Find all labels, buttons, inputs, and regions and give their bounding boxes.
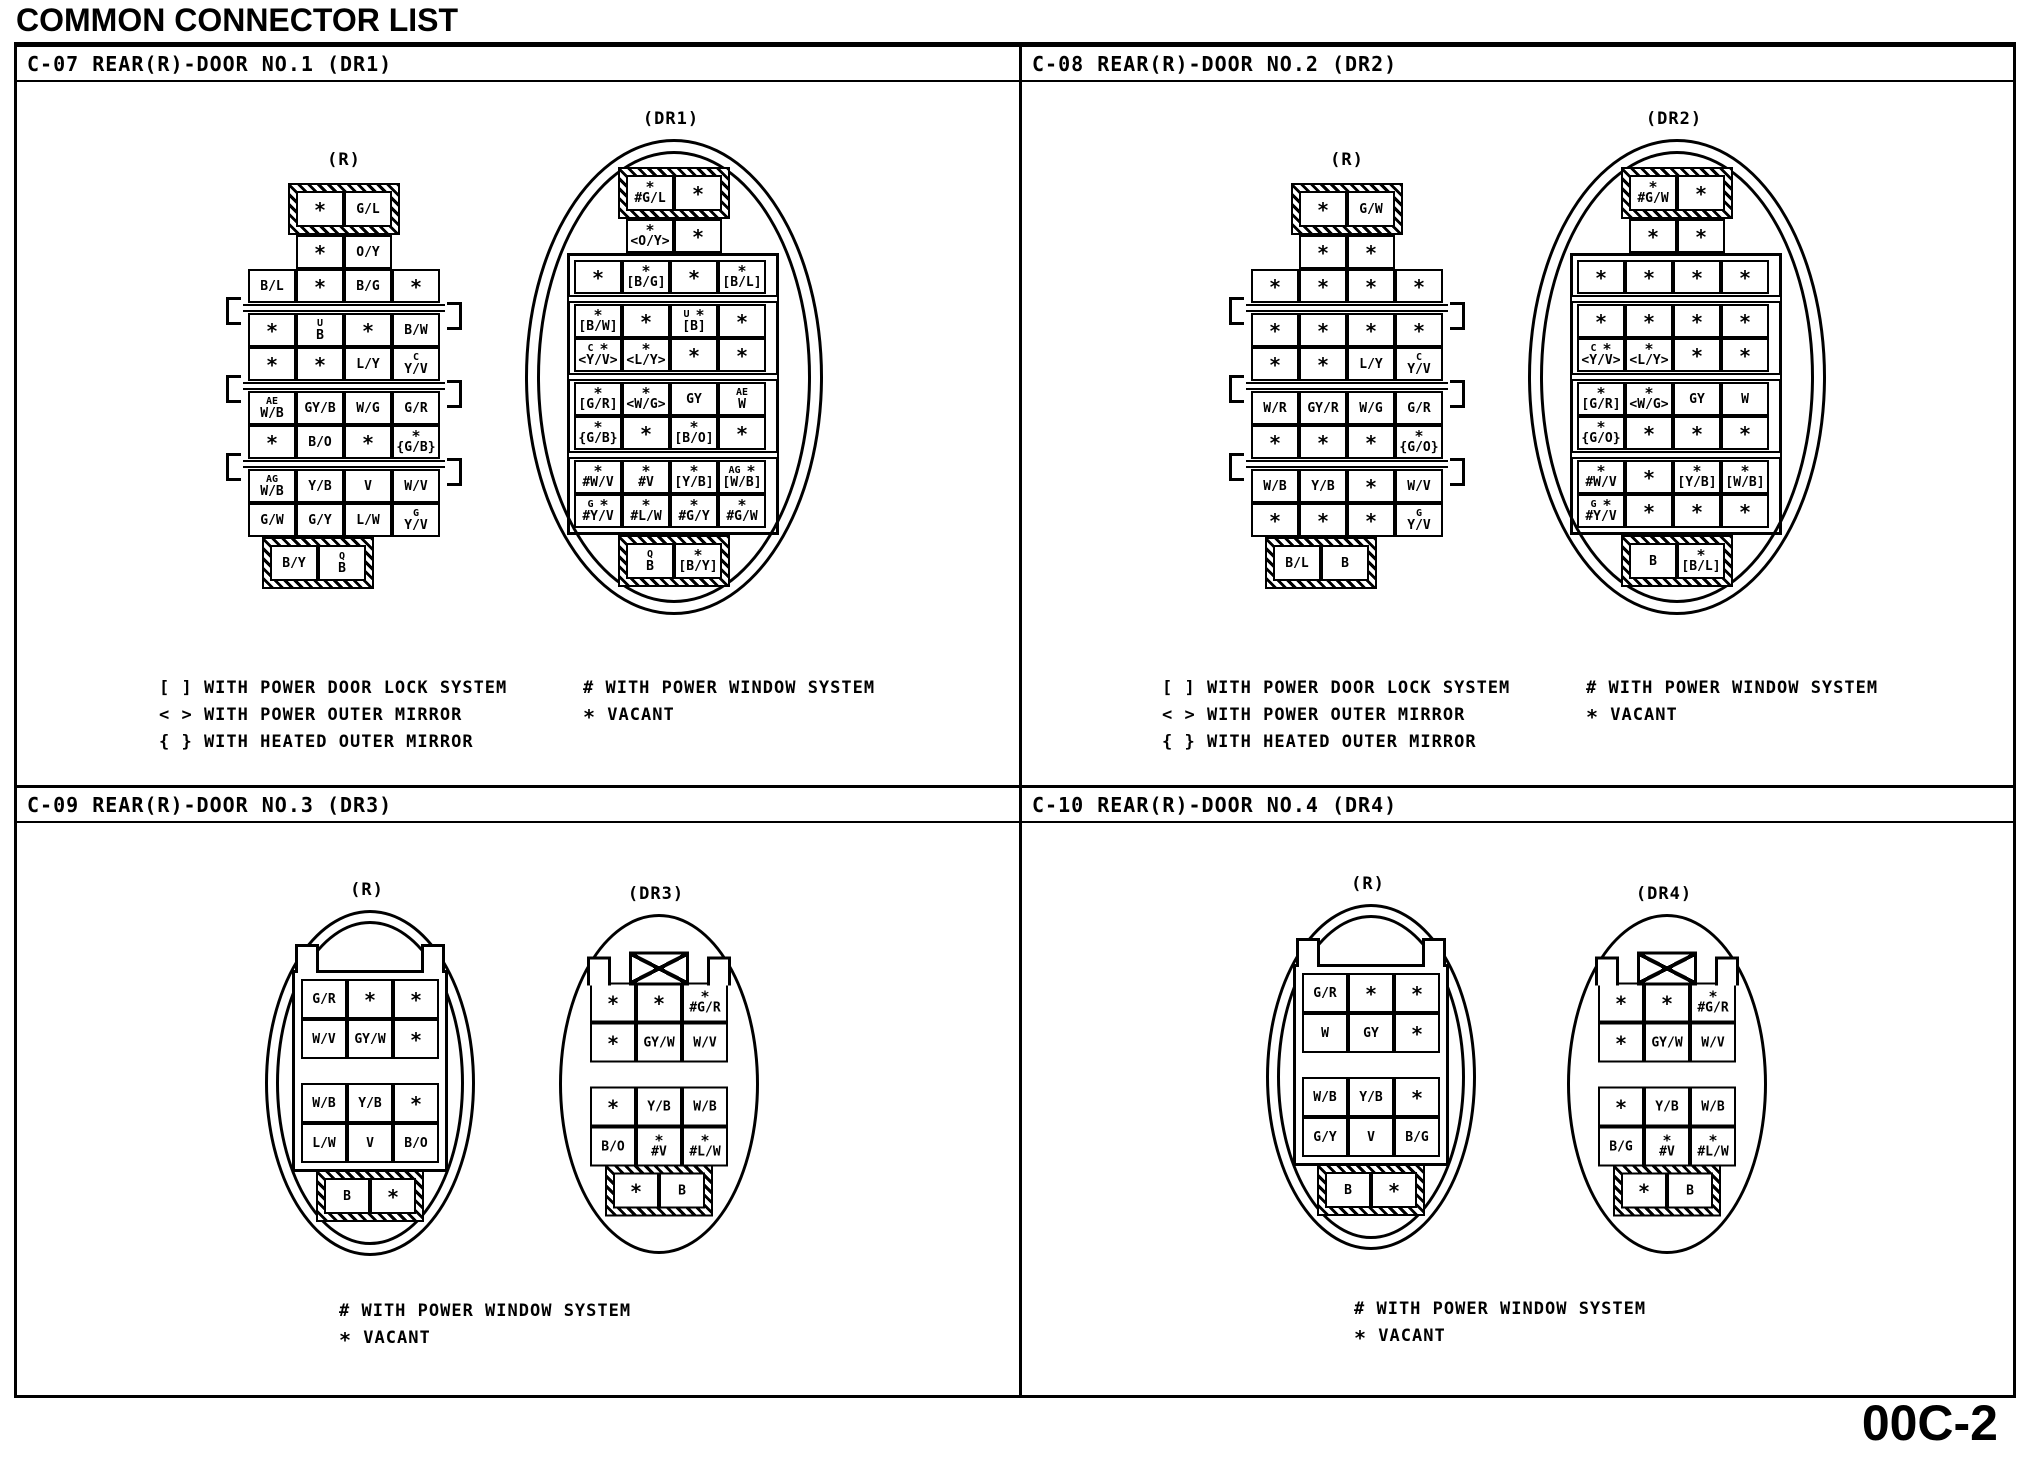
pin-cell: *	[1299, 503, 1347, 537]
pin-cell: *	[393, 1083, 439, 1123]
pin-row: *[B/W]*U *[B]*	[574, 304, 772, 338]
legend-line: * VACANT	[1354, 1323, 1646, 1350]
vacant-asterisk-icon: *	[1354, 1326, 1367, 1350]
pin-row: *B	[1621, 1173, 1713, 1209]
pin-cell: *	[344, 313, 392, 347]
vacant-asterisk-icon: *	[1661, 991, 1673, 1015]
pin-cell: *#G/Y	[670, 494, 718, 528]
pin-row: ***#G/R	[1598, 983, 1736, 1023]
pin-row: *Y/BW/B	[1598, 1087, 1736, 1127]
connector-keying	[587, 952, 731, 986]
pin-cell: *	[1348, 973, 1394, 1013]
pin-row: W/VGY/W*	[301, 1019, 439, 1059]
connector-label-dr4: (DR4)	[1567, 884, 1761, 904]
pin-row: **	[1299, 235, 1395, 269]
vacant-asterisk-icon: *	[1643, 500, 1655, 524]
vacant-asterisk-icon: *	[1739, 422, 1751, 446]
vacant-asterisk-icon: *	[640, 310, 652, 334]
pin-row: *{G/O}***	[1577, 416, 1775, 450]
pin-cell: *#L/W	[1690, 1127, 1736, 1167]
pin-cell: *#G/L	[626, 175, 674, 211]
pin-cell: *#L/W	[622, 494, 670, 528]
pin-cell: W/B	[1690, 1087, 1736, 1127]
pin-cell: *	[1677, 219, 1725, 253]
pin-cell: Y/B	[1299, 469, 1347, 503]
pin-row: G/WG/YL/WGY/V	[248, 503, 440, 537]
pin-cell: W/B	[301, 1083, 347, 1123]
pin-cell: *	[1395, 269, 1443, 303]
pin-cell: G/R	[1302, 973, 1348, 1013]
pin-row: ****	[1577, 304, 1775, 338]
vacant-asterisk-icon: *	[410, 988, 422, 1012]
connector-cap: B*[B/L]	[1621, 535, 1733, 587]
pin-cell: C *<Y/V>	[1577, 338, 1625, 372]
pin-cell: *[B/G]	[622, 260, 670, 294]
pin-cell: O/Y	[344, 235, 392, 269]
pin-cell: *	[1394, 1013, 1440, 1053]
pin-cell: *	[1347, 235, 1395, 269]
pin-cell: *	[1251, 269, 1299, 303]
connector-label-r: (R)	[265, 880, 469, 900]
pin-cell: Y/B	[296, 469, 344, 503]
key-tab	[1595, 957, 1619, 986]
pin-cell: *	[622, 416, 670, 450]
vacant-asterisk-icon: *	[339, 1328, 352, 1352]
grid-separator	[569, 295, 777, 303]
vacant-asterisk-icon: *	[1615, 991, 1627, 1015]
vacant-asterisk-icon: *	[266, 353, 278, 377]
pin-cell: *	[670, 338, 718, 372]
vacant-asterisk-icon: *	[314, 198, 326, 222]
pin-cell: *	[1598, 1087, 1644, 1127]
pin-cell: W/B	[682, 1087, 728, 1127]
pin-cell: B/O	[590, 1127, 636, 1167]
pin-row: B/YQB	[270, 545, 366, 581]
pin-row: *G/L	[296, 191, 392, 227]
pin-cell: *	[1625, 460, 1673, 494]
vacant-asterisk-icon: *	[1596, 462, 1605, 480]
connector-label-r: (R)	[1251, 150, 1443, 170]
pin-cell: *	[1347, 469, 1395, 503]
vacant-asterisk-icon: *	[1317, 319, 1329, 343]
oval-content: ***#G/R*GY/WW/V*Y/BW/BB/O*#V*#L/W*B	[587, 952, 731, 1217]
pin-cell: G/R	[1395, 391, 1443, 425]
pin-cell: G/L	[344, 191, 392, 227]
oval-content: G/R**W/VGY/W*W/BY/B*L/WVB/OB*	[285, 944, 455, 1222]
pin-row: *B	[613, 1173, 705, 1209]
legend-line: < > WITH POWER OUTER MIRROR	[159, 702, 507, 729]
vacant-asterisk-icon: *	[410, 275, 422, 299]
vacant-asterisk-icon: *	[1413, 319, 1425, 343]
vacant-asterisk-icon: *	[1411, 982, 1423, 1006]
vacant-asterisk-icon: *	[1691, 422, 1703, 446]
pin-cell: *	[1577, 260, 1625, 294]
pin-cell: GY/V	[1395, 503, 1443, 537]
pin-cell: *	[1299, 425, 1347, 459]
legend-line: [ ] WITH POWER DOOR LOCK SYSTEM	[159, 675, 507, 702]
pin-row: *#G/L*	[626, 175, 722, 211]
grid-separator	[1246, 460, 1448, 468]
vacant-asterisk-icon: *	[640, 422, 652, 446]
vacant-asterisk-icon: *	[1739, 344, 1751, 368]
vacant-asterisk-icon: *	[266, 431, 278, 455]
pin-row: C *<Y/V>*<L/Y>**	[1577, 338, 1775, 372]
pin-cell: *[W/B]	[1721, 460, 1769, 494]
pin-row: W/BY/B*W/V	[1251, 469, 1443, 503]
legend-right: # WITH POWER WINDOW SYSTEM* VACANT	[583, 675, 875, 729]
pin-row: **L/YCY/V	[248, 347, 440, 381]
vacant-asterisk-icon: *	[1586, 705, 1599, 729]
vacant-asterisk-icon: *	[1595, 310, 1607, 334]
pin-row: B*	[324, 1178, 416, 1214]
vacant-asterisk-icon: *	[1413, 275, 1425, 299]
connector-pinout-r: *G/L*O/YB/L*B/G**UB*B/W**L/YCY/VAEW/BGY/…	[248, 183, 440, 589]
pin-cell: *#W/V	[574, 460, 622, 494]
vacant-asterisk-icon: *	[1269, 509, 1281, 533]
vacant-asterisk-icon: *	[362, 319, 374, 343]
pin-row: AEW/BGY/BW/GG/R	[248, 391, 440, 425]
pin-cell: *	[392, 269, 440, 303]
connector-keying	[285, 944, 455, 973]
pin-cell: *	[622, 304, 670, 338]
connector-cap: B*	[1317, 1164, 1425, 1216]
pin-cell: W/B	[1302, 1077, 1348, 1117]
section-header: C-09 REAR(R)-DOOR NO.3 (DR3)	[17, 788, 1019, 823]
pin-cell: *	[1673, 260, 1721, 294]
vacant-asterisk-icon: *	[1365, 982, 1377, 1006]
connector-pinout-dr3: ***#G/R*GY/WW/V*Y/BW/BB/O*#V*#L/W*B	[559, 914, 759, 1254]
pin-row: B*	[1325, 1172, 1417, 1208]
pin-row: QB*[B/Y]	[626, 543, 722, 579]
oval-pin-grid: *#G/W***********C *<Y/V>*<L/Y>***[G/R]*<…	[1581, 167, 1773, 587]
pin-cell: *#G/R	[1690, 983, 1736, 1023]
pin-cell: GY	[1673, 382, 1721, 416]
pin-cell: W/V	[301, 1019, 347, 1059]
pin-cell: B/L	[248, 269, 296, 303]
pin-cell: W/R	[1251, 391, 1299, 425]
pin-cell: W/V	[682, 1023, 728, 1063]
pin-cell: *	[674, 219, 722, 253]
connector-pinout-dr2: *#G/W***********C *<Y/V>*<L/Y>***[G/R]*<…	[1528, 139, 1826, 615]
pin-row: G *#Y/V***	[1577, 494, 1775, 528]
vacant-asterisk-icon: *	[1595, 266, 1607, 290]
pin-cell: *	[718, 338, 766, 372]
vacant-asterisk-icon: *	[1648, 178, 1657, 196]
pin-cell: *	[1644, 983, 1690, 1023]
pin-cell: *	[1721, 494, 1769, 528]
vacant-asterisk-icon: *	[1615, 1031, 1627, 1055]
legend: # WITH POWER WINDOW SYSTEM* VACANT	[339, 1298, 631, 1352]
vacant-asterisk-icon: *	[1269, 353, 1281, 377]
pin-cell: *	[393, 979, 439, 1019]
vacant-asterisk-icon: *	[700, 1131, 709, 1149]
pin-row: *{G/B}**[B/O]*	[574, 416, 772, 450]
vacant-asterisk-icon: *	[1596, 384, 1605, 402]
connector-pinout-r: *G/W************L/YCY/VW/RGY/RW/GG/R****…	[1251, 183, 1443, 589]
vacant-asterisk-icon: *	[641, 340, 650, 358]
vacant-asterisk-icon: *	[1691, 344, 1703, 368]
pin-cell: V	[1348, 1117, 1394, 1157]
vacant-asterisk-icon: *	[689, 496, 698, 514]
connector-keying	[1595, 952, 1739, 986]
pin-grid: G/R**W/VGY/W*W/BY/B*L/WVB/O	[292, 970, 448, 1172]
section-header: C-08 REAR(R)-DOOR NO.2 (DR2)	[1022, 47, 2013, 82]
oval-pin-grid: *#G/L**<O/Y>***[B/G]**[B/L]*[B/W]*U *[B]…	[578, 167, 770, 587]
pin-cell: GY/V	[392, 503, 440, 537]
key-tab	[1296, 938, 1320, 967]
key-tab	[587, 957, 611, 986]
pin-row: *Y/BW/B	[590, 1087, 728, 1127]
pin-cell: AGW/B	[248, 469, 296, 503]
vacant-asterisk-icon: *	[1739, 310, 1751, 334]
pin-cell: W/V	[1690, 1023, 1736, 1063]
vacant-asterisk-icon: *	[747, 462, 756, 480]
pin-cell: *{G/B}	[574, 416, 622, 450]
pin-cell: GY	[670, 382, 718, 416]
vacant-asterisk-icon: *	[1365, 509, 1377, 533]
pin-cell: W/G	[344, 391, 392, 425]
vacant-asterisk-icon: *	[736, 344, 748, 368]
pin-row: *O/Y	[296, 235, 392, 269]
pin-cell: *	[248, 313, 296, 347]
vacant-asterisk-icon: *	[583, 705, 596, 729]
vacant-asterisk-icon: *	[1317, 275, 1329, 299]
key-tab	[295, 944, 319, 973]
pin-cell: *#G/R	[682, 983, 728, 1023]
grid-separator	[1246, 304, 1448, 312]
pin-cell: *	[590, 1023, 636, 1063]
pin-cell: *	[296, 235, 344, 269]
pin-cell: *	[718, 304, 766, 338]
pin-cell: B	[1629, 543, 1677, 579]
vacant-asterisk-icon: *	[692, 225, 704, 249]
pin-cell: GY/W	[1644, 1023, 1690, 1063]
pin-row: **	[1629, 219, 1725, 253]
pin-cell: *	[1347, 313, 1395, 347]
pin-row: *UB*B/W	[248, 313, 440, 347]
connector-cap: *B	[1613, 1165, 1721, 1217]
pin-cell: G/Y	[1302, 1117, 1348, 1157]
pin-cell: CY/V	[1395, 347, 1443, 381]
vacant-asterisk-icon: *	[700, 987, 709, 1005]
pin-row: *GY/WW/V	[1598, 1023, 1736, 1063]
vacant-asterisk-icon: *	[1388, 1179, 1400, 1203]
connector-keying	[1286, 938, 1456, 967]
connector-pinout-dr1: *#G/L**<O/Y>***[B/G]**[B/L]*[B/W]*U *[B]…	[525, 139, 823, 615]
pin-cell: GY/W	[636, 1023, 682, 1063]
key-tab	[1422, 938, 1446, 967]
connector-cap: *B	[605, 1165, 713, 1217]
pin-cell: *{G/O}	[1395, 425, 1443, 459]
connector-label-dr1: (DR1)	[525, 109, 817, 129]
pin-cell: *	[1251, 425, 1299, 459]
pin-cell: *<O/Y>	[626, 219, 674, 253]
vacant-asterisk-icon: *	[654, 1131, 663, 1149]
vacant-asterisk-icon: *	[1740, 462, 1749, 480]
pin-row: L/WVB/O	[301, 1123, 439, 1163]
grid-separator	[243, 382, 445, 390]
pin-row: *[G/R]*<W/G>GYAEW	[574, 382, 772, 416]
page-number: 00C-2	[1862, 1394, 1998, 1452]
pin-cell: QB	[318, 545, 366, 581]
vacant-asterisk-icon: *	[645, 178, 654, 196]
pin-cell: W/V	[1395, 469, 1443, 503]
pin-row: W/RGY/RW/GG/R	[1251, 391, 1443, 425]
vacant-asterisk-icon: *	[1365, 241, 1377, 265]
pin-cell: CY/V	[392, 347, 440, 381]
pin-cell: G/R	[392, 391, 440, 425]
pin-cell: C *<Y/V>	[574, 338, 622, 372]
vacant-asterisk-icon: *	[1662, 1131, 1671, 1149]
vacant-asterisk-icon: *	[314, 241, 326, 265]
legend-line: * VACANT	[583, 702, 875, 729]
pin-cell: *	[1371, 1172, 1417, 1208]
pin-cell: AEW/B	[248, 391, 296, 425]
pin-cell: G/W	[248, 503, 296, 537]
vacant-asterisk-icon: *	[736, 310, 748, 334]
pin-cell: *	[590, 1087, 636, 1127]
pin-cell: *[B/Y]	[674, 543, 722, 579]
legend-right: # WITH POWER WINDOW SYSTEM* VACANT	[1586, 675, 1878, 729]
vacant-asterisk-icon: *	[641, 462, 650, 480]
pin-cell: QB	[626, 543, 674, 579]
pin-cell: L/Y	[1347, 347, 1395, 381]
pin-grid: ********C *<Y/V>*<L/Y>***[G/R]*<W/G>GYW*…	[1570, 253, 1782, 535]
pin-cell: G/R	[301, 979, 347, 1019]
pin-cell: W/V	[392, 469, 440, 503]
pin-row: ****	[1251, 313, 1443, 347]
vacant-asterisk-icon: *	[696, 306, 705, 324]
vacant-asterisk-icon: *	[1643, 422, 1655, 446]
vacant-asterisk-icon: *	[387, 1185, 399, 1209]
pin-cell: *[G/R]	[574, 382, 622, 416]
pin-cell: *[Y/B]	[1673, 460, 1721, 494]
vacant-asterisk-icon: *	[1411, 1086, 1423, 1110]
pin-cell: *[B/O]	[670, 416, 718, 450]
pin-cell: *	[347, 979, 393, 1019]
vacant-asterisk-icon: *	[1603, 340, 1612, 358]
pin-cell: *[G/R]	[1577, 382, 1625, 416]
pin-cell: *{G/O}	[1577, 416, 1625, 450]
legend-line: { } WITH HEATED OUTER MIRROR	[1162, 729, 1510, 756]
pin-row: **[B/G]**[B/L]	[574, 260, 772, 294]
grid-separator	[243, 460, 445, 468]
pin-row: B/G*#V*#L/W	[1598, 1127, 1736, 1167]
pin-cell: *	[1598, 1023, 1644, 1063]
pin-cell: *	[1673, 494, 1721, 528]
pin-cell: *	[1721, 416, 1769, 450]
pin-row: *B/O**{G/B}	[248, 425, 440, 459]
pin-cell: B	[324, 1178, 370, 1214]
pin-row: *#W/V**[Y/B]*[W/B]	[1577, 460, 1775, 494]
pin-row: *GY/WW/V	[590, 1023, 728, 1063]
vacant-asterisk-icon: *	[1696, 546, 1705, 564]
vacant-asterisk-icon: *	[1615, 1095, 1627, 1119]
pin-cell: B/L	[1273, 545, 1321, 581]
pin-cell: L/W	[344, 503, 392, 537]
section-c08: C-08 REAR(R)-DOOR NO.2 (DR2) (R) *G/W***…	[1022, 47, 2013, 785]
pin-grid: **[B/G]**[B/L]*[B/W]*U *[B]*C *<Y/V>*<L/…	[567, 253, 779, 535]
pin-cell: GY	[1348, 1013, 1394, 1053]
vacant-asterisk-icon: *	[314, 353, 326, 377]
pin-cell: *	[1625, 494, 1673, 528]
section-c07: C-07 REAR(R)-DOOR NO.1 (DR1) (R) *G/L*O/…	[17, 47, 1019, 785]
pin-cell: *	[670, 260, 718, 294]
legend-line: < > WITH POWER OUTER MIRROR	[1162, 702, 1510, 729]
pin-row: B/L*B/G*	[248, 269, 440, 303]
legend-left: [ ] WITH POWER DOOR LOCK SYSTEM< > WITH …	[1162, 675, 1510, 756]
pin-cell: AG *[W/B]	[718, 460, 766, 494]
pin-cell: *[Y/B]	[670, 460, 718, 494]
connector-cap: B*	[316, 1170, 424, 1222]
pin-cell: *	[344, 425, 392, 459]
pin-row: W/BY/B*	[1302, 1077, 1440, 1117]
pin-cell: *<W/G>	[622, 382, 670, 416]
pin-cell: B	[659, 1173, 705, 1209]
connector-list-frame: C-07 REAR(R)-DOOR NO.1 (DR1) (R) *G/L*O/…	[14, 42, 2016, 1398]
pin-cell: *	[1625, 416, 1673, 450]
vacant-asterisk-icon: *	[1692, 462, 1701, 480]
pin-cell: W/B	[1251, 469, 1299, 503]
vacant-asterisk-icon: *	[592, 266, 604, 290]
vacant-asterisk-icon: *	[737, 262, 746, 280]
pin-cell: Y/B	[636, 1087, 682, 1127]
vacant-asterisk-icon: *	[1365, 475, 1377, 499]
pin-row: G/YVB/G	[1302, 1117, 1440, 1157]
pin-cell: B/W	[392, 313, 440, 347]
connector-pinout-r: G/R**WGY*W/BY/B*G/YVB/GB*	[1266, 904, 1476, 1250]
section-header: C-07 REAR(R)-DOOR NO.1 (DR1)	[17, 47, 1019, 82]
vacant-asterisk-icon: *	[1695, 225, 1707, 249]
pin-cell: *#G/W	[1629, 175, 1677, 211]
vacant-asterisk-icon: *	[1691, 266, 1703, 290]
pin-cell: *	[296, 269, 344, 303]
pin-cell: W/G	[1347, 391, 1395, 425]
pin-cell: *#V	[622, 460, 670, 494]
pin-row: *G/W	[1299, 191, 1395, 227]
pin-cell: *	[370, 1178, 416, 1214]
pin-cell: B/G	[344, 269, 392, 303]
pin-cell: Y/B	[1348, 1077, 1394, 1117]
pin-cell: *	[1299, 235, 1347, 269]
pin-grid: G/R**WGY*W/BY/B*G/YVB/G	[1293, 964, 1449, 1166]
pin-cell: B	[1667, 1173, 1713, 1209]
pin-row: C *<Y/V>*<L/Y>**	[574, 338, 772, 372]
section-c10: C-10 REAR(R)-DOOR NO.4 (DR4) (R) G/R**WG…	[1022, 788, 2013, 1395]
pin-cell: *	[1251, 503, 1299, 537]
pin-row: G *#Y/V*#L/W*#G/Y*#G/W	[574, 494, 772, 528]
pin-row: ***GY/V	[1251, 503, 1443, 537]
vacant-asterisk-icon: *	[1739, 266, 1751, 290]
pin-row: B*[B/L]	[1629, 543, 1725, 579]
connector-label-dr2: (DR2)	[1528, 109, 1820, 129]
pin-cell: W	[1302, 1013, 1348, 1053]
pin-cell: *	[1673, 416, 1721, 450]
connector-pinout-dr4: ***#G/R*GY/WW/V*Y/BW/BB/G*#V*#L/W*B	[1567, 914, 1767, 1254]
vacant-asterisk-icon: *	[630, 1179, 642, 1203]
connector-cap: *#G/L*	[618, 167, 730, 219]
pin-row: ****	[1251, 269, 1443, 303]
vacant-asterisk-icon: *	[689, 418, 698, 436]
pin-cell: *	[1629, 219, 1677, 253]
pin-row: **L/YCY/V	[1251, 347, 1443, 381]
vacant-asterisk-icon: *	[1644, 340, 1653, 358]
pin-row: ***#G/R	[590, 983, 728, 1023]
pin-cell: *	[1677, 175, 1725, 211]
connector-cap: B/YQB	[262, 537, 374, 589]
vacant-asterisk-icon: *	[1365, 431, 1377, 455]
connector-cap: *#G/W*	[1621, 167, 1733, 219]
